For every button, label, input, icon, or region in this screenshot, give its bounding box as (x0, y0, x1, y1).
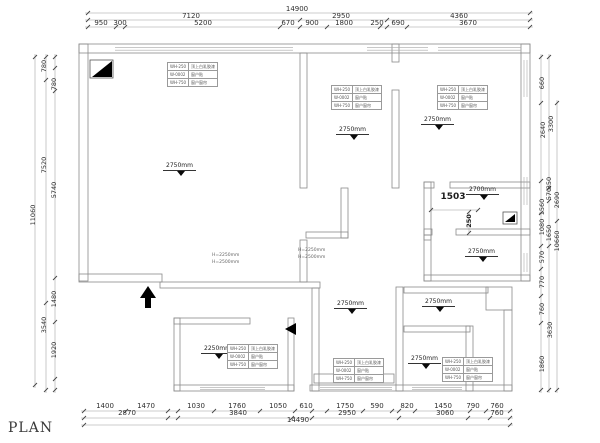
ceiling-height-value: 2750mm (163, 163, 196, 171)
dim-label: 670 (281, 20, 294, 27)
elevation-triangle-icon (350, 135, 358, 140)
schedule-code: WH-750 (334, 375, 355, 383)
schedule-label: 顶上白乳胶漆 (189, 63, 218, 71)
beam-height-note: H=2250mmH=2500mm (212, 252, 239, 266)
finish-schedule-table: WH-250顶上白乳胶漆W-0002窗户贴WH-750窗户窗帘 (227, 344, 278, 369)
finish-schedule-table: WH-250顶上白乳胶漆W-0002窗户贴WH-750窗户窗帘 (333, 358, 384, 383)
dim-label: 1800 (335, 20, 353, 27)
elevation-triangle-icon (435, 125, 443, 130)
finish-schedule-table: WH-250顶上白乳胶漆W-0002窗户贴WH-750窗户窗帘 (442, 357, 493, 382)
schedule-code: W-0002 (443, 366, 464, 374)
finish-schedule-table: WH-250顶上白乳胶漆W-0002窗户贴WH-750窗户窗帘 (437, 85, 488, 110)
dim-label: 820 (400, 403, 413, 410)
schedule-code: W-0002 (168, 71, 189, 79)
schedule-code: WH-750 (443, 374, 464, 382)
dim-label: 3840 (229, 410, 247, 417)
schedule-code: WH-750 (332, 102, 353, 110)
schedule-row: WH-750窗户窗帘 (438, 102, 488, 110)
dim-label: 1400 (96, 403, 114, 410)
schedule-label: 窗户窗帘 (464, 374, 493, 382)
schedule-label: 窗户贴 (249, 353, 278, 361)
schedule-row: WH-750窗户窗帘 (443, 374, 493, 382)
dim-label-vertical: 660 (539, 77, 546, 89)
dim-label-vertical: 780 (41, 60, 48, 72)
ceiling-height-value: 2750mm (334, 301, 367, 309)
dim-label-vertical: 770 (539, 276, 546, 288)
schedule-label: 顶上白乳胶漆 (464, 358, 493, 366)
ceiling-height-value: 2750mm (421, 117, 454, 125)
dim-label-vertical: 10660 (554, 231, 561, 252)
ceiling-height-value: 2750mm (465, 249, 498, 257)
schedule-code: WH-750 (168, 79, 189, 87)
schedule-label: 顶上白乳胶漆 (355, 359, 384, 367)
schedule-code: WH-250 (228, 345, 249, 353)
floor-plan-canvas: 1490071202950436095030052006709001800250… (0, 0, 600, 443)
dim-label: 790 (466, 403, 479, 410)
schedule-row: W-0002窗户贴 (228, 353, 278, 361)
schedule-row: W-0002窗户贴 (443, 366, 493, 374)
ceiling-height-marker: 2750mm (421, 117, 454, 130)
schedule-label: 窗户贴 (189, 71, 218, 79)
inline-dim-label: 250 (465, 214, 473, 228)
ceiling-height-marker: 2750mm (336, 127, 369, 140)
schedule-code: W-0002 (334, 367, 355, 375)
schedule-label: 顶上白乳胶漆 (249, 345, 278, 353)
schedule-code: WH-250 (334, 359, 355, 367)
elevation-triangle-icon (479, 257, 487, 262)
schedule-row: W-0002窗户贴 (334, 367, 384, 375)
ceiling-height-marker: 2700mm (466, 187, 499, 200)
schedule-label: 顶上白乳胶漆 (353, 86, 382, 94)
schedule-row: W-0002窗户贴 (332, 94, 382, 102)
dim-label: 3060 (436, 410, 454, 417)
dim-label-vertical: 2690 (554, 192, 561, 209)
schedule-row: W-0002窗户贴 (438, 94, 488, 102)
dim-label: 900 (305, 20, 318, 27)
dim-label-vertical: 1920 (51, 342, 58, 359)
schedule-code: W-0002 (438, 94, 459, 102)
schedule-row: WH-250顶上白乳胶漆 (228, 345, 278, 353)
dim-label-vertical: 2640 (540, 122, 547, 139)
elevation-triangle-icon (348, 309, 356, 314)
elevation-triangle-icon (177, 171, 185, 176)
dim-label: 14900 (286, 6, 308, 13)
beam-height-line: H=2250mm (212, 252, 239, 259)
dim-label: 2870 (118, 410, 136, 417)
dim-label-vertical: 1560 (539, 199, 546, 216)
dim-label-vertical: 1650 (546, 225, 553, 242)
dim-label-vertical: 1480 (51, 291, 58, 308)
dim-label-vertical: 570 (539, 251, 546, 263)
dim-label-vertical: 11060 (30, 205, 37, 226)
schedule-label: 窗户窗帘 (355, 375, 384, 383)
dim-label: 950 (94, 20, 107, 27)
dim-label: 2950 (338, 410, 356, 417)
schedule-row: W-0002窗户贴 (168, 71, 218, 79)
ceiling-height-marker: 2750mm (408, 356, 441, 369)
elevation-triangle-icon (422, 364, 430, 369)
schedule-row: WH-250顶上白乳胶漆 (438, 86, 488, 94)
finish-schedule-table: WH-250顶上白乳胶漆W-0002窗户贴WH-750窗户窗帘 (167, 62, 218, 87)
schedule-code: WH-250 (438, 86, 459, 94)
dim-label-vertical: 7520 (41, 157, 48, 174)
dim-label-vertical: 780 (51, 78, 58, 90)
dim-label: 590 (370, 403, 383, 410)
beam-height-line: H=2250mm (298, 247, 325, 254)
dim-label: 5200 (194, 20, 212, 27)
dim-label: 690 (391, 20, 404, 27)
schedule-code: W-0002 (332, 94, 353, 102)
dim-label: 760 (490, 410, 503, 417)
dim-label-vertical: 3540 (41, 317, 48, 334)
annotation-layer: 1490071202950436095030052006709001800250… (0, 0, 600, 443)
schedule-row: WH-750窗户窗帘 (332, 102, 382, 110)
elevation-triangle-icon (436, 307, 444, 312)
dim-label: 300 (113, 20, 126, 27)
schedule-label: 窗户贴 (464, 366, 493, 374)
ceiling-height-value: 2700mm (466, 187, 499, 195)
schedule-code: WH-750 (228, 361, 249, 369)
plan-title: PLAN (8, 420, 53, 436)
ceiling-height-marker: 2750mm (465, 249, 498, 262)
schedule-label: 窗户窗帘 (189, 79, 218, 87)
schedule-row: WH-250顶上白乳胶漆 (168, 63, 218, 71)
dim-label: 1050 (269, 403, 287, 410)
dim-label-vertical: 3300 (548, 116, 555, 133)
ceiling-height-marker: 2750mm (334, 301, 367, 314)
schedule-row: WH-250顶上白乳胶漆 (443, 358, 493, 366)
schedule-row: WH-250顶上白乳胶漆 (334, 359, 384, 367)
beam-height-note: H=2250mmH=2500mm (298, 247, 325, 261)
dim-label-vertical: 570 (546, 188, 553, 200)
beam-height-line: H=2500mm (298, 254, 325, 261)
dim-label: 14490 (287, 417, 309, 424)
schedule-code: WH-250 (332, 86, 353, 94)
schedule-label: 窗户贴 (355, 367, 384, 375)
schedule-label: 窗户贴 (459, 94, 488, 102)
finish-schedule-table: WH-250顶上白乳胶漆W-0002窗户贴WH-750窗户窗帘 (331, 85, 382, 110)
ceiling-height-value: 2750mm (336, 127, 369, 135)
dim-label: 1470 (137, 403, 155, 410)
schedule-code: WH-250 (443, 358, 464, 366)
schedule-row: WH-750窗户窗帘 (168, 79, 218, 87)
schedule-code: WH-250 (168, 63, 189, 71)
schedule-code: WH-750 (438, 102, 459, 110)
schedule-label: 窗户窗帘 (459, 102, 488, 110)
schedule-label: 顶上白乳胶漆 (459, 86, 488, 94)
dim-label: 1030 (187, 403, 205, 410)
dim-label-vertical: 3630 (547, 322, 554, 339)
ceiling-height-marker: 2750mm (163, 163, 196, 176)
schedule-label: 窗户贴 (353, 94, 382, 102)
schedule-row: WH-750窗户窗帘 (228, 361, 278, 369)
schedule-row: WH-750窗户窗帘 (334, 375, 384, 383)
schedule-code: W-0002 (228, 353, 249, 361)
dim-label: 610 (299, 403, 312, 410)
ceiling-height-value: 2750mm (422, 299, 455, 307)
ceiling-height-value: 2750mm (408, 356, 441, 364)
schedule-label: 窗户窗帘 (249, 361, 278, 369)
dim-label: 3670 (459, 20, 477, 27)
schedule-row: WH-250顶上白乳胶漆 (332, 86, 382, 94)
dim-label-vertical: 760 (539, 303, 546, 315)
dim-label-vertical: 5740 (51, 182, 58, 199)
dim-label: 250 (370, 20, 383, 27)
inline-dim-label: 1503 (440, 192, 465, 202)
dim-label-vertical: 1860 (539, 356, 546, 373)
ceiling-height-marker: 2750mm (422, 299, 455, 312)
beam-height-line: H=2500mm (212, 259, 239, 266)
elevation-triangle-icon (480, 195, 488, 200)
elevation-triangle-icon (215, 354, 223, 359)
schedule-label: 窗户窗帘 (353, 102, 382, 110)
